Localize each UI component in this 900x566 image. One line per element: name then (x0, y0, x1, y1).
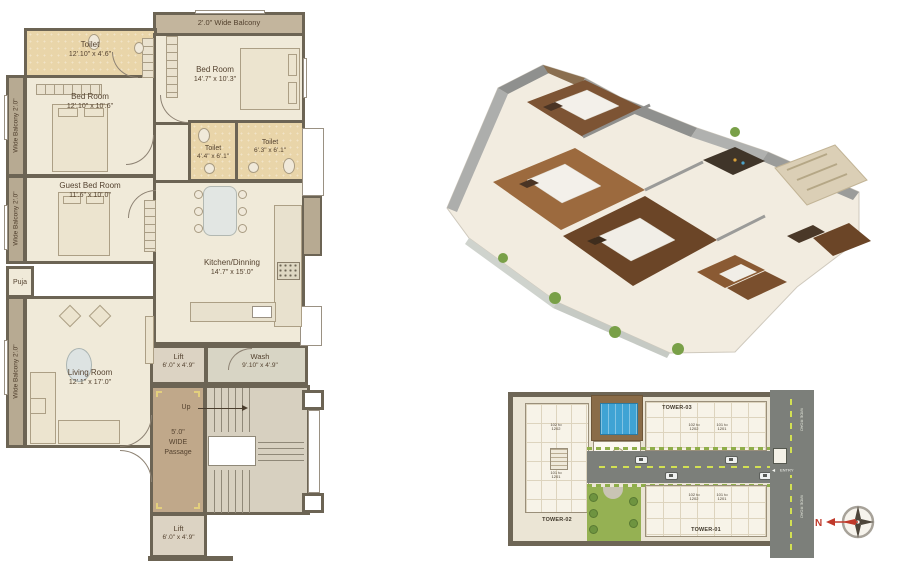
passage-corner-marker (156, 391, 162, 397)
room-label-bedroom-top-right: Bed Room 14'.7" x 10'.3" (160, 65, 270, 84)
stair-flight-up (208, 388, 256, 432)
compass: N (815, 500, 885, 546)
internal-road (587, 451, 792, 483)
room-label-guest-bedroom: Guest Bed Room 11'.6" x 10'.0" (35, 181, 145, 200)
duct (302, 196, 322, 256)
window (195, 10, 265, 14)
bed-pillow (288, 82, 297, 104)
stair-landing (208, 436, 256, 466)
column (302, 493, 324, 513)
window (4, 205, 8, 250)
balcony-label: Wide Balcony 2'.0" (13, 181, 20, 257)
balcony-label: Wide Balcony 2'.0" (13, 334, 20, 410)
column (302, 390, 324, 410)
wc-fixture (283, 158, 295, 174)
passage-corner-marker (194, 391, 200, 397)
dining-chair (194, 190, 203, 199)
tree (589, 509, 598, 518)
stair-flight-mid (258, 438, 304, 466)
tower-01-units: 102 to 1202 (688, 493, 701, 501)
kitchen-sink (252, 306, 272, 318)
bed-pillow (288, 54, 297, 76)
parked-car (665, 472, 678, 480)
public-road: ◀ ENTRY WIDE ROAD WIDE ROAD (770, 390, 814, 558)
room-label-living: Living Room 12'.1" x 17'.0" (35, 368, 145, 387)
garden (587, 487, 641, 541)
tower-03-label: TOWER-03 (657, 404, 698, 410)
lane-divider (599, 466, 779, 468)
dining-chair (238, 207, 247, 216)
tower-02-units: 102 to 1202 (550, 423, 563, 431)
tree (589, 525, 598, 534)
up-label: Up (176, 403, 196, 412)
lane-divider (790, 475, 792, 550)
balcony-label: Wide Balcony 2'.0" (13, 88, 20, 164)
service-niche (300, 306, 322, 346)
tower-02-footprint (525, 403, 589, 513)
parked-car (635, 456, 648, 464)
flower-bed-niche (302, 128, 324, 196)
stair-flight-down (208, 470, 256, 513)
wardrobe (142, 38, 154, 78)
room-label-wash: Wash 9'.10" x 4'.9" (215, 352, 305, 370)
washbasin (204, 163, 215, 174)
passage-corner-marker (194, 503, 200, 509)
room-label-lift-upper: Lift 6'.0" x 4'.9" (150, 352, 207, 370)
passage-corner-marker (156, 503, 162, 509)
tree (629, 519, 638, 528)
room-label-toilet-small: Toilet 4'.4" x 6'.1" (189, 144, 237, 162)
lane-divider (790, 398, 792, 453)
tower-02-units: 101 to 1201 (550, 471, 563, 479)
dining-chair (194, 224, 203, 233)
balcony-top-label: 2'.0" Wide Balcony (153, 18, 305, 28)
road-name-label: WIDE ROAD (800, 408, 805, 431)
washbasin (248, 162, 259, 173)
gate-box (773, 448, 787, 464)
window (4, 340, 8, 395)
tower-01-units: 101 to 1201 (716, 493, 729, 501)
tower-01-label: TOWER-01 (684, 526, 729, 532)
hedge-strip (587, 447, 792, 450)
up-arrow-head-icon (242, 405, 248, 411)
floorplan-sheet: { "plan2d": { "top_balcony_label": "2'.0… (0, 0, 900, 566)
entry-label: ENTRY (780, 468, 793, 473)
garden-path (603, 487, 623, 499)
road-name-label: WIDE ROAD (800, 495, 805, 518)
dining-chair (238, 224, 247, 233)
window (303, 58, 307, 98)
north-label: N (815, 518, 822, 529)
wc-fixture (198, 128, 210, 143)
side-table (30, 398, 46, 414)
window (4, 95, 8, 140)
unit-floorplan-2d: Wide Balcony 2'.0" Wide Balcony 2'.0" Wi… (0, 0, 340, 566)
tower-03-units: 102 to 1202 (688, 423, 701, 431)
room-label-toilet-top: Toilet 12'.10" x 4'.6" (40, 40, 140, 59)
wall-stub (148, 556, 233, 561)
swimming-pool (600, 403, 638, 435)
entry-arrow-icon: ◀ (772, 468, 775, 473)
room-label-toilet-mid: Toilet 6'.3" x 6'.1" (238, 138, 302, 156)
dining-chair (238, 190, 247, 199)
site-plan: 102 to 1202 101 to 1201 TOWER-02 TOWER-0… (508, 392, 792, 546)
room-label-kitchen: Kitchen/Dinning 14'.7" x 15'.0" (172, 258, 292, 277)
tower-02-core (550, 448, 568, 470)
parked-car (725, 456, 738, 464)
pool-deck (591, 395, 643, 441)
dining-chair (194, 207, 203, 216)
corridor (153, 122, 191, 183)
tower-03-units: 101 to 1201 (716, 423, 729, 431)
dining-table (203, 186, 237, 236)
tower-02-label: TOWER-02 (533, 516, 582, 522)
compass-rose: N (815, 500, 885, 546)
passage-label: 5'.0" WIDE Passage (150, 428, 206, 458)
room-label-bedroom-left: Bed Room 12'.10" x 10'.6" (40, 92, 140, 111)
main-door-arc (120, 450, 152, 482)
sofa (58, 420, 120, 444)
room-label-lift-lower: Lift 6'.0" x 4'.9" (150, 524, 207, 542)
up-arrow-icon (198, 408, 242, 409)
tree (589, 493, 598, 502)
apartment-3d-svg (435, 40, 900, 360)
stair-outer-gap (308, 410, 320, 493)
room-label-puja: Puja (8, 278, 32, 287)
tree (629, 497, 638, 506)
apartment-3d-render (435, 40, 900, 360)
